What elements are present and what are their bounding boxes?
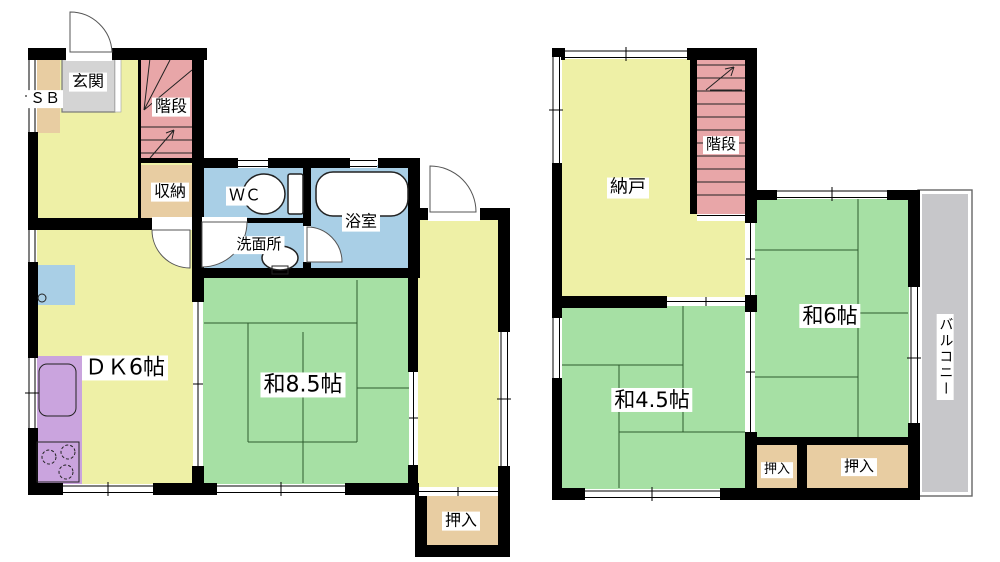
storage-label: 収納 [151, 183, 189, 202]
stairs2-label: 階段 [703, 136, 739, 154]
balcony-label: バルコニー [937, 314, 954, 400]
storeroom-label: 納戸 [607, 178, 649, 199]
sink-counter [35, 265, 75, 305]
bathtub [316, 172, 408, 216]
corridor-door-arc [430, 166, 476, 212]
tatami45-label: 和4.5帖 [611, 388, 692, 412]
stairs2-floor [697, 52, 745, 214]
washroom-label: 洗面所 [233, 236, 284, 254]
dk-label: ＤＫ6帖 [82, 355, 168, 380]
closet2f-large-label: 押入 [841, 458, 877, 476]
floor2-plan [549, 47, 972, 501]
floorplan: 玄関 ＳＢ 階段 収納 ＷＣ 浴室 洗面所 ＤＫ6帖 和8.5帖 押入 納戸 階… [0, 0, 1000, 562]
genkan-label: 玄関 [69, 73, 107, 92]
tatami6-label: 和6帖 [799, 304, 860, 328]
kitchen-counter [33, 356, 82, 485]
bathroom-label: 浴室 [342, 213, 380, 232]
shoe-box-label: ＳＢ [27, 90, 63, 108]
closet2f-small-label: 押入 [761, 462, 793, 478]
floor1-plan [25, 12, 511, 557]
stairs1-label: 階段 [152, 98, 190, 117]
entrance-door-arc [70, 12, 112, 52]
floorplan-drawing [0, 0, 1000, 562]
corridor-floor [416, 216, 502, 490]
wc-label: ＷＣ [226, 187, 264, 206]
tatami85-label: 和8.5帖 [261, 372, 346, 397]
genkan-step [115, 57, 121, 112]
closet1f-label: 押入 [442, 512, 480, 531]
toilet-tank [288, 174, 303, 214]
